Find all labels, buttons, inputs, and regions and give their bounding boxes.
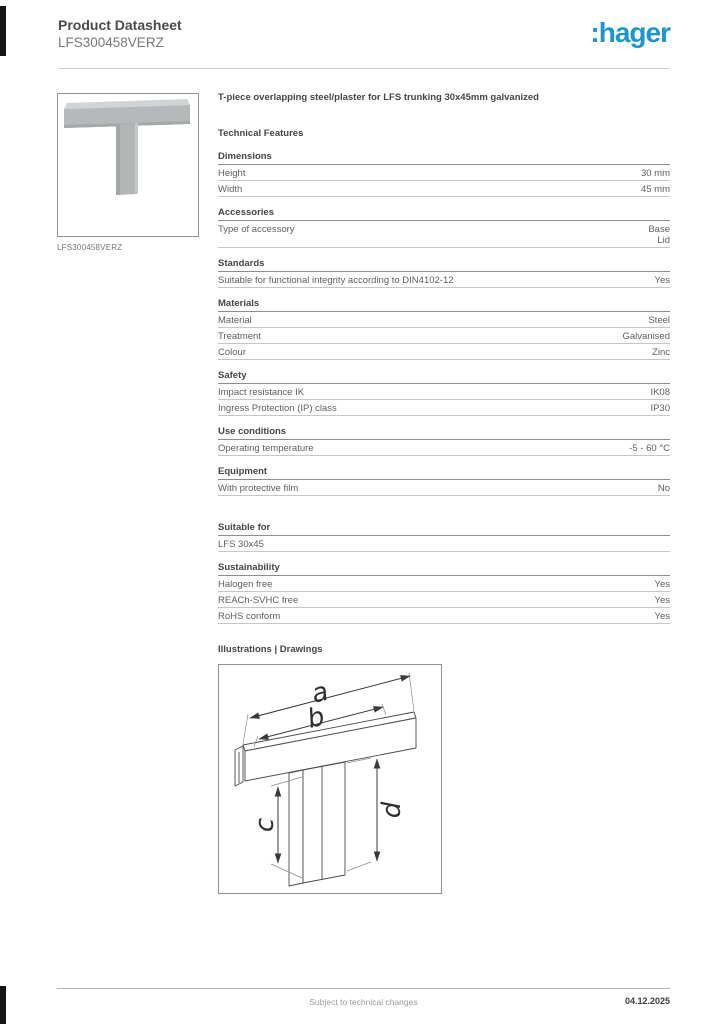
- spec-label: Suitable for functional integrity accord…: [218, 275, 464, 286]
- datasheet-page: Product Datasheet LFS300458VERZ :hager L…: [0, 0, 724, 1024]
- spec-section: Standards Suitable for functional integr…: [218, 258, 670, 288]
- spec-label: Width: [218, 184, 252, 195]
- spec-row: LFS 30x45: [218, 536, 670, 552]
- technical-features-heading: Technical Features: [218, 128, 670, 139]
- spec-value: Yes: [655, 595, 671, 606]
- spec-column: T-piece overlapping steel/plaster for LF…: [218, 92, 670, 894]
- spec-rows: Suitable for functional integrity accord…: [218, 272, 670, 288]
- dim-label-c: c: [250, 818, 280, 832]
- spec-rows: Material Steel Treatment Galvanised Colo…: [218, 312, 670, 360]
- spec-label: Colour: [218, 347, 256, 358]
- spec-value: 30 mm: [641, 168, 670, 179]
- spec-section-heading: Equipment: [218, 466, 670, 480]
- product-photo-caption: LFS300458VERZ: [57, 243, 200, 252]
- spec-rows: Operating temperature -5 - 60 °C: [218, 440, 670, 456]
- spec-label: Treatment: [218, 331, 271, 342]
- spec-label: Operating temperature: [218, 443, 324, 454]
- spec-value: IK08: [650, 387, 670, 398]
- footer: Subject to technical changes 04.12.2025: [57, 988, 670, 1018]
- spec-label: Impact resistance IK: [218, 387, 314, 398]
- spec-value: Zinc: [652, 347, 670, 358]
- dimension-drawing-frame: a b c d: [218, 664, 442, 894]
- spec-label: Height: [218, 168, 255, 179]
- product-image-column: LFS300458VERZ: [57, 93, 200, 252]
- spec-row: Width 45 mm: [218, 181, 670, 197]
- spec-sections: Dimensions Height 30 mm Width 45 mm Acce…: [218, 151, 670, 624]
- doc-product-code: LFS300458VERZ: [58, 35, 164, 50]
- spec-row: With protective film No: [218, 480, 670, 496]
- spec-label: RoHS conform: [218, 611, 290, 622]
- header-divider: [58, 68, 670, 69]
- spec-label: Type of accessory: [218, 224, 305, 235]
- spec-value: No: [658, 483, 670, 494]
- spec-section-heading: Accessories: [218, 207, 670, 221]
- product-photo-frame: [57, 93, 199, 237]
- spec-label: Halogen free: [218, 579, 282, 590]
- spec-row: Height 30 mm: [218, 165, 670, 181]
- spec-rows: Height 30 mm Width 45 mm: [218, 165, 670, 197]
- spec-label: LFS 30x45: [218, 539, 274, 550]
- spec-label: With protective film: [218, 483, 308, 494]
- spec-label: Ingress Protection (IP) class: [218, 403, 347, 414]
- spec-section: Sustainability Halogen free Yes REACh-SV…: [218, 562, 670, 624]
- hager-logo: :hager: [590, 18, 670, 48]
- spec-value: 45 mm: [641, 184, 670, 195]
- spec-row: Halogen free Yes: [218, 576, 670, 592]
- spec-rows: Halogen free Yes REACh-SVHC free Yes RoH…: [218, 576, 670, 624]
- spec-rows: Impact resistance IK IK08 Ingress Protec…: [218, 384, 670, 416]
- spec-label: Material: [218, 315, 262, 326]
- spec-value: Galvanised: [622, 331, 670, 342]
- spec-section: Dimensions Height 30 mm Width 45 mm: [218, 151, 670, 197]
- doc-title: Product Datasheet: [58, 17, 182, 33]
- dimension-drawing: a b c d: [219, 665, 441, 893]
- spec-row: Treatment Galvanised: [218, 328, 670, 344]
- spec-value: Yes: [655, 579, 671, 590]
- footer-note: Subject to technical changes: [57, 997, 670, 1007]
- spec-value: Yes: [655, 275, 671, 286]
- spec-label: REACh-SVHC free: [218, 595, 308, 606]
- spec-section: Equipment With protective film No: [218, 466, 670, 496]
- spec-row: Material Steel: [218, 312, 670, 328]
- spec-section-heading: Safety: [218, 370, 670, 384]
- crop-mark-top: [0, 6, 6, 56]
- spec-rows: Type of accessory Base Lid: [218, 221, 670, 248]
- product-title: T-piece overlapping steel/plaster for LF…: [218, 92, 670, 103]
- spec-value: Base Lid: [648, 224, 670, 246]
- spec-rows: With protective film No: [218, 480, 670, 496]
- spec-section-heading: Sustainability: [218, 562, 670, 576]
- spec-row: Impact resistance IK IK08: [218, 384, 670, 400]
- illustrations-heading: Illustrations | Drawings: [218, 644, 670, 655]
- spec-section-heading: Standards: [218, 258, 670, 272]
- spec-section-heading: Suitable for: [218, 522, 670, 536]
- crop-mark-bottom: [0, 986, 6, 1024]
- spec-row: Suitable for functional integrity accord…: [218, 272, 670, 288]
- spec-section: Safety Impact resistance IK IK08 Ingress…: [218, 370, 670, 416]
- product-photo: [58, 94, 198, 236]
- spec-value: -5 - 60 °C: [629, 443, 670, 454]
- spec-row: Ingress Protection (IP) class IP30: [218, 400, 670, 416]
- spec-row: RoHS conform Yes: [218, 608, 670, 624]
- spec-row: Type of accessory Base Lid: [218, 221, 670, 248]
- spec-section-heading: Materials: [218, 298, 670, 312]
- spec-section: Suitable for LFS 30x45: [218, 522, 670, 552]
- spec-row: Operating temperature -5 - 60 °C: [218, 440, 670, 456]
- spec-value: Steel: [648, 315, 670, 326]
- spec-value: IP30: [650, 403, 670, 414]
- spec-row: REACh-SVHC free Yes: [218, 592, 670, 608]
- spec-rows: LFS 30x45: [218, 536, 670, 552]
- dim-label-d: d: [377, 801, 407, 818]
- spec-section: Materials Material Steel Treatment Galva…: [218, 298, 670, 360]
- spec-value: Yes: [655, 611, 671, 622]
- spec-row: Colour Zinc: [218, 344, 670, 360]
- spec-section-heading: Use conditions: [218, 426, 670, 440]
- spec-section-heading: Dimensions: [218, 151, 670, 165]
- spec-section: Accessories Type of accessory Base Lid: [218, 207, 670, 248]
- spec-section: Use conditions Operating temperature -5 …: [218, 426, 670, 456]
- footer-date: 04.12.2025: [625, 996, 670, 1006]
